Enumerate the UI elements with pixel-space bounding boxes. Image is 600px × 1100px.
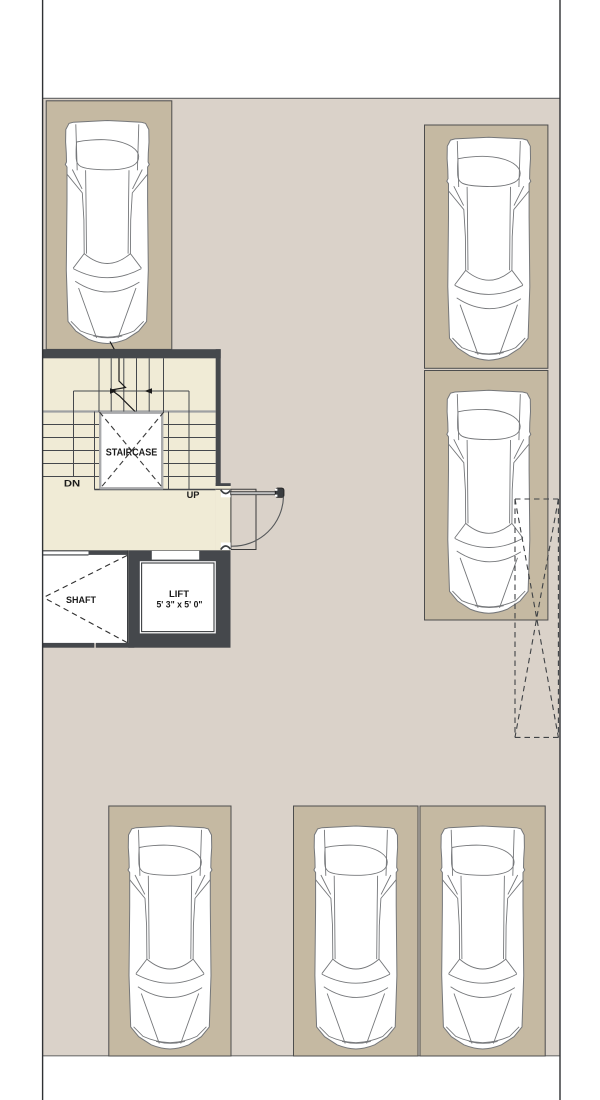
svg-text:STAIRCASE: STAIRCASE [106, 448, 158, 459]
svg-text:LIFT: LIFT [169, 589, 189, 599]
svg-text:SHAFT: SHAFT [66, 595, 96, 605]
svg-text:5' 3" x 5' 0": 5' 3" x 5' 0" [157, 600, 203, 610]
svg-text:DN: DN [64, 479, 81, 489]
svg-text:UP: UP [187, 490, 200, 500]
